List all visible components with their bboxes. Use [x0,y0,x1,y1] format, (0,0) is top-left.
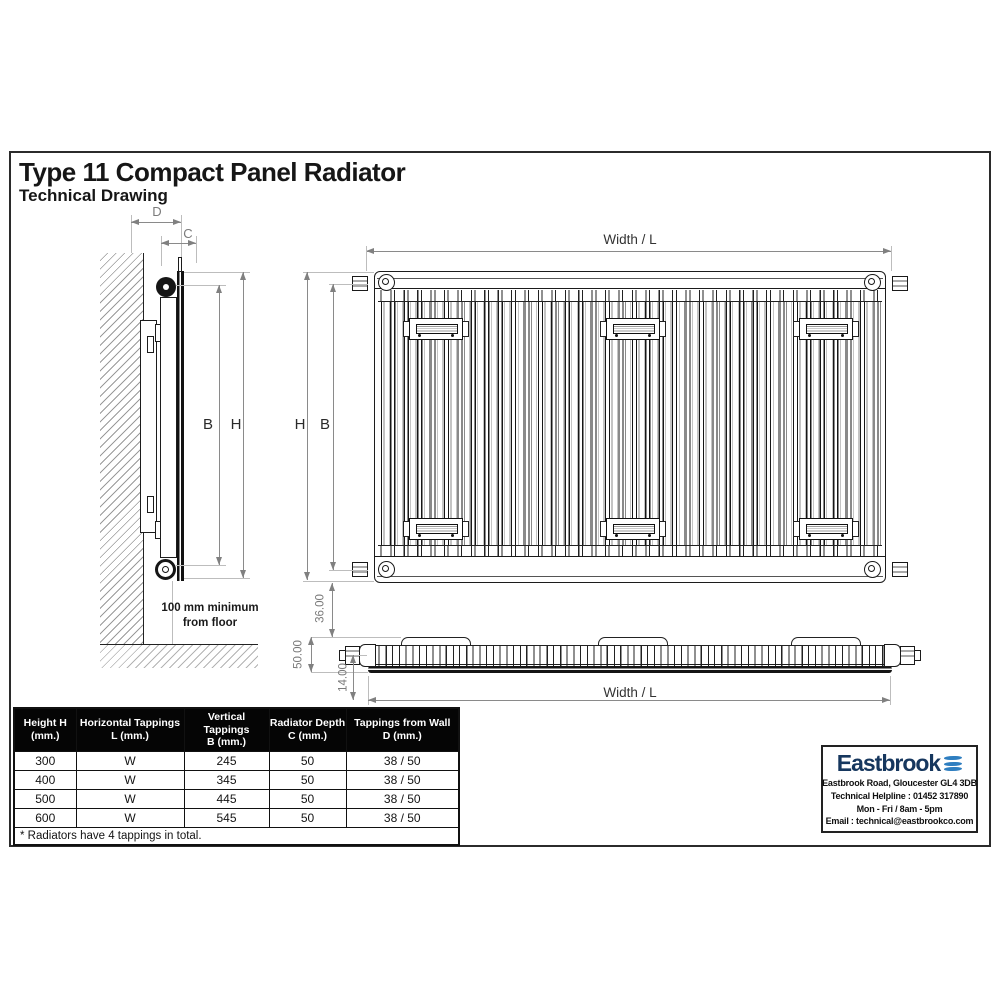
side-dim-b-line [219,285,220,565]
plan-dim-50-arrow-top [308,637,314,645]
plan-ext-637 [311,637,401,638]
brand-helpline: Technical Helpline : 01452 317890 [831,790,968,803]
plan-convector-loops [376,645,884,666]
table-cell: 50 [269,789,346,808]
radiator-rear-panel-side [160,297,177,558]
brand-address: Eastbrook Road, Gloucester GL4 3DB [822,777,977,790]
side-dim-h-arrow-bottom [240,570,246,578]
table-cell: 445 [184,789,269,808]
plan-dim-36-arrow-bottom [329,629,335,637]
dim-c-label: C [178,226,198,241]
table-cell: 600 [14,808,76,827]
plan-base-plate [368,666,892,673]
front-width-label: Width / L [560,232,700,247]
floor-note-line2: from floor [150,616,270,631]
brand-logo: Eastbrook [837,750,962,777]
spec-table: Height H(mm.) Horizontal TappingsL (mm.)… [13,707,460,846]
col-header-height: Height H(mm.) [14,708,76,751]
side-dim-h-arrow-top [240,272,246,280]
side-ext-bottom-b [176,565,226,566]
plan-dim-36-arrow-top [329,583,335,591]
brand-box: Eastbrook Eastbrook Road, Gloucester GL4… [821,745,978,833]
table-cell: W [76,751,184,770]
top-rail-bottom-line [375,288,885,289]
bracket-bottom-center [600,518,666,540]
plan-dim-14-label: 14.00 [338,656,351,700]
table-row: 500 W 445 50 38 / 50 [14,789,459,808]
side-dim-b-arrow-top [216,285,222,293]
table-cell: 50 [269,770,346,789]
front-dim-h-label: H [292,416,308,433]
bottom-rail-inner-line [377,576,883,577]
table-footnote-row: * Radiators have 4 tappings in total. [14,827,459,845]
table-footnote: * Radiators have 4 tappings in total. [14,827,459,845]
plan-width-ext-right [890,676,891,705]
top-rail-inner-line [377,278,883,279]
plan-dim-14-arrow-bottom [350,692,356,700]
table-cell: 50 [269,751,346,770]
air-vent-pin [178,257,182,272]
table-cell: 300 [14,751,76,770]
front-ext-bottom-h [303,581,374,582]
top-grille-slots [378,290,882,302]
plan-width-arrow-right [882,697,890,703]
bracket-top-left [403,318,469,340]
plan-valve-right-cap [900,646,915,665]
front-width-arrow-right [883,248,891,254]
tapping-bottom-left [378,561,395,578]
bracket-bottom-right [793,518,859,540]
brand-hours: Mon - Fri / 8am - 5pm [857,803,943,816]
plan-width-arrow-left [368,697,376,703]
bracket-slot-bottom [147,496,154,513]
front-ext-bottom-b [329,570,368,571]
front-dim-b-line [333,284,334,570]
front-width-line [366,251,891,252]
table-cell: W [76,808,184,827]
col-header-horizontal-tappings: Horizontal TappingsL (mm.) [76,708,184,751]
floor-clearance-note: 100 mm minimum from floor [150,601,270,631]
dim-d-arrow-right [173,219,181,225]
bracket-top-right [793,318,859,340]
tapping-top-left [378,274,395,291]
bracket-slot-top [147,336,154,353]
plan-valve-right-body [884,644,901,667]
front-ext-top-h [303,272,374,273]
table-row: 600 W 545 50 38 / 50 [14,808,459,827]
brand-logo-text: Eastbrook [837,750,940,777]
table-cell: 545 [184,808,269,827]
dim-c-arrow-left [161,240,169,246]
plan-dim-14-arrow-top [350,655,356,663]
col-header-radiator-depth: Radiator DepthC (mm.) [269,708,346,751]
tapping-top-right [864,274,881,291]
col-header-vertical-tappings: Vertical TappingsB (mm.) [184,708,269,751]
plan-dim-50-label: 50.00 [293,633,306,677]
top-valve-side [156,277,176,297]
radiator-front-panel-side [177,271,184,581]
side-dim-b-label: B [200,416,216,433]
bottom-valve-side [155,559,176,580]
bracket-bottom-left [403,518,469,540]
front-dim-b-label: B [317,416,333,433]
table-cell: W [76,789,184,808]
plan-dim-50-arrow-bottom [308,664,314,672]
table-cell: 345 [184,770,269,789]
dim-d-label: D [145,204,169,219]
floor-hatch [100,644,258,668]
table-cell: 500 [14,789,76,808]
bracket-top-center [600,318,666,340]
floor-note-line1: 100 mm minimum [150,601,270,616]
table-cell: 38 / 50 [346,751,459,770]
table-cell: 400 [14,770,76,789]
front-width-arrow-left [366,248,374,254]
bottom-rail-top-line [375,556,885,557]
col-header-tappings-from-wall: Tappings from WallD (mm.) [346,708,459,751]
front-width-ext-left [366,246,367,271]
plan-valve-right-tip [914,650,921,661]
table-cell: W [76,770,184,789]
table-cell: 38 / 50 [346,808,459,827]
plan-width-label: Width / L [560,685,700,700]
technical-drawing-page: Type 11 Compact Panel Radiator Technical… [0,0,1000,1000]
table-cell: 38 / 50 [346,789,459,808]
tapping-bottom-right [864,561,881,578]
front-dim-h-arrow-top [304,272,310,280]
wall-hatch [100,253,144,644]
dim-d-arrow-left [131,219,139,225]
table-cell: 245 [184,751,269,770]
side-ext-bottom-h [184,578,250,579]
front-width-ext-right [891,246,892,271]
table-cell: 38 / 50 [346,770,459,789]
brand-email: Email : technical@eastbrookco.com [826,815,974,828]
front-dim-b-arrow-bottom [330,562,336,570]
table-cell: 50 [269,808,346,827]
table-row: 400 W 345 50 38 / 50 [14,770,459,789]
plan-dim-36-label: 36.00 [315,587,328,631]
hex-plug-bottom-right [892,562,908,577]
table-row: 300 W 245 50 38 / 50 [14,751,459,770]
front-dim-b-arrow-top [330,284,336,292]
page-title: Type 11 Compact Panel Radiator [19,157,405,188]
side-dim-h-label: H [228,416,244,433]
hex-plug-top-right [892,276,908,291]
waves-icon [944,756,962,771]
side-dim-b-arrow-bottom [216,557,222,565]
page-subtitle: Technical Drawing [19,186,168,206]
spec-header-row: Height H(mm.) Horizontal TappingsL (mm.)… [14,708,459,751]
front-dim-h-arrow-bottom [304,572,310,580]
plan-width-line [368,700,890,701]
